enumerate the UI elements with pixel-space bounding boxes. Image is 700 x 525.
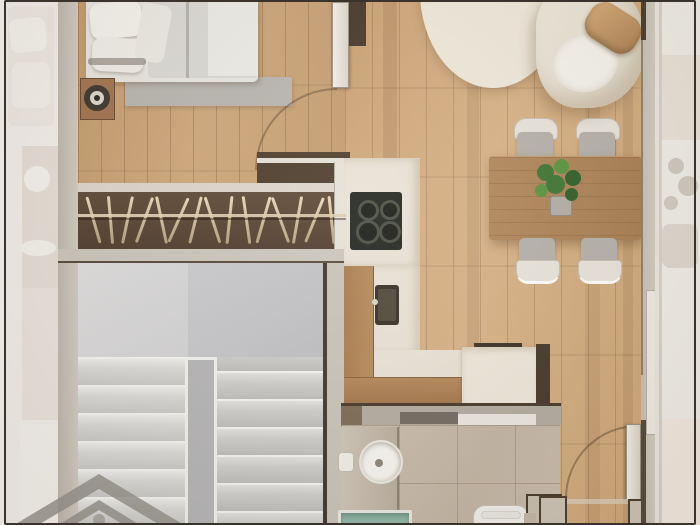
clothes-hanger <box>204 197 222 244</box>
wardrobe <box>78 192 346 249</box>
clothes-hanger <box>107 196 114 244</box>
plant-leaf <box>565 188 578 201</box>
plant-leaf <box>535 184 548 197</box>
basin-drain <box>375 459 383 467</box>
stair-step <box>78 385 185 415</box>
plant-leaf <box>546 175 565 194</box>
wall-stair-top <box>58 249 350 263</box>
faded-plant <box>664 196 678 210</box>
wall-right-line <box>641 40 643 375</box>
stair-landing-right <box>188 263 325 357</box>
stair-step <box>78 441 185 471</box>
faucet <box>372 299 378 305</box>
clothes-hanger <box>225 196 233 244</box>
wall-right-dark-bottom <box>641 420 646 525</box>
watermark-logo <box>10 470 190 525</box>
dining-chair <box>576 118 618 160</box>
wall-bedroom-partition <box>349 0 366 46</box>
clothes-hanger <box>292 196 303 244</box>
bed-sheet <box>208 0 258 76</box>
stair-step <box>217 511 325 525</box>
threshold <box>567 499 628 504</box>
shower-glass-bar <box>400 412 458 424</box>
pillow <box>88 0 143 41</box>
burner-ring <box>379 221 401 243</box>
stair-step <box>78 357 185 387</box>
faded-warm-band <box>662 55 700 140</box>
wall-notch <box>524 513 536 525</box>
plant-leaf <box>554 159 569 174</box>
wall-block <box>341 406 362 425</box>
bedroom-door-leaf <box>332 2 349 88</box>
clothes-hanger <box>188 196 203 243</box>
stair-landing-left <box>78 263 188 357</box>
stair-step <box>78 413 185 443</box>
stair-flight-right <box>217 357 325 525</box>
wall-edge-dark <box>341 403 561 406</box>
stair-step <box>217 371 325 401</box>
soap-dish <box>338 452 354 472</box>
sink-basin-inner <box>378 289 396 321</box>
dining-chair <box>516 238 558 280</box>
clothes-hanger <box>85 197 101 244</box>
bathroom <box>341 403 561 525</box>
stair-step <box>217 399 325 429</box>
faded-floor <box>662 418 700 525</box>
wall-entry-jamb-left <box>539 496 567 525</box>
watermark-dot <box>93 514 105 525</box>
cooktop <box>350 192 402 250</box>
burner-ring <box>358 200 379 221</box>
clothes-hanger <box>135 197 154 243</box>
stair-step <box>217 483 325 513</box>
adjacent-unit-left <box>6 0 58 525</box>
bed-frame-edge <box>88 58 146 65</box>
burner-ring <box>356 220 380 244</box>
fade-overlay <box>6 0 58 525</box>
balcony-right-faded <box>662 0 700 525</box>
entry-door-leaf <box>626 424 641 501</box>
toilet-seat <box>481 511 521 519</box>
faded-plant <box>668 158 684 174</box>
wall-right-dark-top <box>641 0 646 40</box>
burner-ring <box>380 200 400 220</box>
clothes-hanger <box>242 196 252 244</box>
island-edge-dark <box>474 343 522 347</box>
plant-leaf <box>565 170 581 186</box>
clothes-hanger <box>155 196 168 244</box>
island-cabinet <box>462 347 538 405</box>
clothes-hanger <box>255 197 271 244</box>
clothes-hanger <box>271 197 290 243</box>
clothes-hanger <box>304 197 325 243</box>
dining-chair <box>514 118 556 160</box>
faded-chair <box>662 224 698 268</box>
wall-right-highlight <box>655 0 659 525</box>
dining-chair <box>578 238 620 280</box>
floor-plan-render <box>0 0 700 525</box>
kitchen-counter-bottom <box>374 350 462 378</box>
clothes-hanger <box>121 196 134 244</box>
wardrobe-top-frame <box>78 183 350 192</box>
blanket-fold <box>186 0 189 78</box>
lamp-center <box>94 95 100 101</box>
double-bed <box>86 0 258 82</box>
hanging-rail <box>78 214 346 217</box>
shower-tray <box>338 510 412 525</box>
stair-step <box>217 427 325 457</box>
shelf-bar <box>458 414 536 425</box>
rail-shadow <box>78 218 346 220</box>
clothes-hanger <box>167 197 189 242</box>
stair-step <box>217 455 325 485</box>
faded-plant <box>678 176 698 196</box>
